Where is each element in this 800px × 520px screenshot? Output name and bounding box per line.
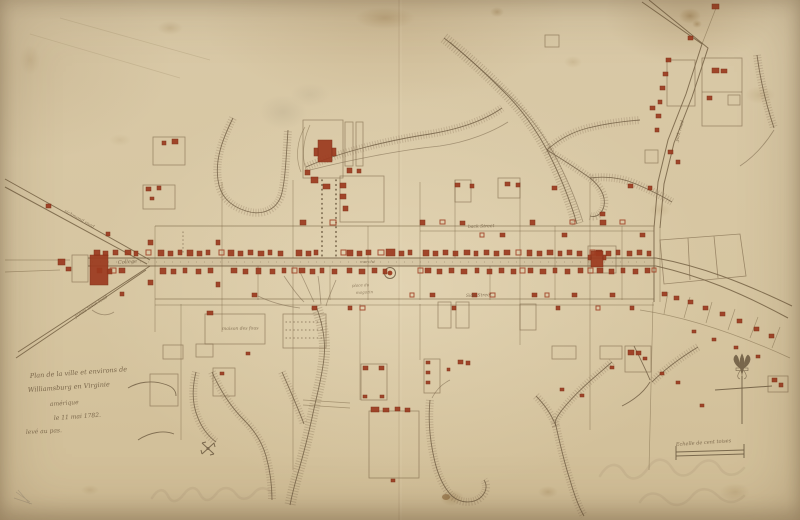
red-building	[712, 338, 716, 341]
red-building	[628, 350, 634, 355]
red-building	[504, 250, 510, 255]
red-building	[433, 251, 438, 256]
red-building	[645, 268, 650, 273]
red-building	[332, 269, 337, 274]
red-building	[676, 381, 680, 384]
red-building	[148, 240, 153, 245]
red-building	[600, 220, 606, 225]
red-building	[426, 361, 430, 364]
red-building	[703, 306, 708, 310]
red-building	[383, 408, 389, 412]
red-building	[426, 381, 430, 384]
red-building	[647, 251, 651, 256]
red-building	[620, 220, 625, 224]
red-building	[332, 148, 336, 156]
red-building	[196, 269, 201, 274]
cartouche-line3: amérique	[50, 399, 80, 408]
red-building	[299, 268, 305, 273]
red-building	[395, 407, 400, 411]
ghost-writing	[14, 460, 744, 505]
cartouche-line2: Williamsburg en Virginie	[28, 380, 111, 394]
red-building	[318, 140, 332, 162]
red-building	[426, 371, 430, 374]
red-building	[453, 251, 458, 256]
red-building	[372, 268, 377, 273]
red-building	[341, 250, 346, 255]
red-building	[712, 68, 719, 73]
red-building	[306, 251, 311, 256]
red-building	[343, 206, 348, 211]
red-building	[577, 251, 582, 256]
red-building	[627, 251, 632, 256]
red-building	[197, 251, 202, 256]
red-building	[378, 250, 384, 255]
red-building	[487, 269, 492, 274]
red-building	[391, 479, 395, 482]
red-building	[207, 311, 213, 315]
red-building	[616, 250, 620, 255]
red-building	[596, 306, 600, 310]
red-building	[206, 250, 210, 255]
red-building	[528, 268, 533, 273]
red-building	[314, 148, 318, 156]
red-building	[464, 250, 470, 255]
red-building	[300, 220, 306, 225]
red-building	[666, 58, 671, 62]
red-building	[330, 220, 336, 225]
red-building	[662, 292, 667, 296]
red-building	[172, 139, 178, 144]
red-building	[630, 306, 634, 310]
red-building	[219, 250, 224, 255]
cartouche-line1: Plan de la ville et environs de	[29, 365, 128, 380]
cartouche-line4: le 11 mai 1782.	[54, 412, 102, 422]
red-building	[470, 184, 474, 188]
map-label-maison-des-fous: maison des fous	[222, 325, 259, 332]
red-building	[320, 268, 324, 273]
red-building	[562, 233, 567, 237]
red-building	[572, 293, 577, 297]
red-building	[148, 280, 153, 285]
red-building	[90, 255, 108, 285]
red-building	[146, 250, 151, 255]
red-building	[700, 404, 704, 407]
red-building	[707, 96, 712, 100]
red-building	[447, 368, 450, 371]
red-building	[363, 366, 368, 370]
red-building	[458, 360, 463, 364]
red-building	[410, 293, 414, 297]
red-building	[305, 170, 310, 175]
red-building	[636, 351, 641, 355]
red-building	[516, 183, 520, 187]
red-building	[216, 240, 220, 245]
red-building	[530, 220, 535, 225]
red-building	[578, 268, 583, 273]
red-building	[494, 251, 499, 256]
red-building	[405, 408, 410, 412]
red-building	[663, 72, 668, 76]
scale-label: Echelle de cent toises	[675, 438, 732, 448]
red-building	[532, 293, 537, 297]
creeks-layer	[92, 38, 774, 516]
red-building	[597, 268, 603, 273]
red-building	[314, 250, 318, 255]
red-building	[560, 388, 564, 391]
red-building	[256, 268, 261, 274]
red-building	[168, 251, 173, 256]
map-label-side-street: Side Street	[466, 292, 492, 299]
red-building	[258, 251, 264, 256]
red-building	[769, 334, 774, 338]
red-building	[171, 269, 176, 274]
red-building	[183, 268, 187, 273]
red-building	[606, 251, 611, 256]
red-building	[588, 268, 593, 273]
red-building	[248, 250, 253, 255]
red-building	[423, 250, 429, 256]
red-building	[545, 293, 549, 297]
red-building	[734, 346, 738, 349]
red-building	[712, 4, 719, 9]
map-label-jamestown-road: james town road	[73, 294, 109, 320]
red-building	[231, 268, 237, 273]
red-building	[150, 197, 154, 200]
red-building	[621, 268, 625, 273]
map-label-magazine-1: place du	[352, 282, 370, 288]
red-building	[120, 292, 124, 296]
red-building	[311, 177, 318, 183]
red-building	[371, 407, 379, 412]
red-building	[558, 251, 562, 256]
red-building	[520, 268, 525, 273]
red-building	[246, 352, 250, 355]
red-building	[162, 141, 166, 145]
red-building	[628, 184, 633, 188]
red-building	[537, 251, 542, 256]
red-building	[347, 168, 352, 173]
red-building	[500, 233, 505, 237]
red-building	[134, 251, 138, 256]
red-building	[340, 183, 346, 188]
red-building	[540, 269, 546, 274]
red-building	[721, 69, 727, 73]
map-label-magazine-2: magazin	[356, 289, 374, 295]
red-building	[688, 36, 693, 40]
red-building	[668, 150, 673, 154]
red-building	[656, 114, 661, 118]
red-building	[527, 250, 532, 256]
red-building	[418, 268, 423, 273]
red-building	[553, 268, 557, 273]
red-building	[125, 250, 131, 255]
red-building	[347, 250, 353, 256]
red-building	[46, 204, 51, 208]
map-label-market: marché	[360, 259, 376, 264]
red-building	[674, 296, 679, 300]
windmill-icon	[201, 442, 215, 455]
red-building	[567, 250, 572, 255]
red-building	[157, 186, 161, 190]
red-building	[146, 187, 151, 191]
red-building	[511, 269, 516, 274]
red-building	[474, 251, 478, 256]
red-building	[270, 269, 275, 274]
red-building	[692, 330, 696, 333]
red-building	[565, 269, 570, 274]
cartouche-line5: levé au pas.	[26, 427, 62, 436]
red-building	[357, 251, 362, 256]
red-building	[220, 372, 224, 375]
red-building	[643, 357, 647, 360]
red-building	[461, 269, 467, 274]
red-building	[588, 255, 591, 260]
red-building	[648, 186, 652, 190]
red-building	[437, 269, 442, 274]
red-building	[440, 220, 445, 224]
red-building	[610, 366, 614, 369]
red-building	[106, 232, 110, 236]
red-building	[386, 249, 395, 256]
red-building	[340, 194, 346, 199]
red-building	[779, 383, 783, 387]
red-building	[475, 268, 479, 273]
red-building	[633, 269, 638, 274]
red-building	[160, 268, 166, 274]
red-building	[58, 259, 65, 265]
cartouche: Plan de la ville et environs de Williams…	[26, 365, 128, 436]
red-building	[383, 269, 387, 274]
red-building	[379, 366, 384, 370]
red-building	[600, 212, 605, 216]
red-building	[252, 293, 257, 297]
red-building	[323, 184, 330, 189]
red-building	[772, 378, 777, 382]
red-building	[113, 250, 118, 255]
red-building	[380, 395, 384, 398]
red-building	[756, 355, 760, 358]
red-building	[296, 250, 302, 256]
red-building	[228, 250, 234, 256]
red-building	[359, 269, 365, 274]
red-building	[609, 269, 614, 274]
red-building	[505, 182, 510, 186]
red-building	[268, 250, 272, 255]
red-building	[399, 251, 404, 256]
red-building	[443, 250, 448, 255]
red-building	[430, 293, 435, 297]
red-building	[603, 255, 606, 260]
red-building	[480, 233, 484, 237]
red-building	[676, 160, 680, 164]
red-building	[357, 169, 361, 173]
red-building	[312, 306, 317, 310]
red-building	[66, 267, 71, 271]
red-building	[552, 186, 557, 190]
red-building	[484, 250, 489, 255]
red-building	[466, 361, 470, 365]
red-building	[347, 268, 352, 273]
compass-rose	[715, 354, 772, 424]
red-building	[425, 268, 431, 273]
red-building	[754, 327, 759, 331]
red-building	[208, 268, 213, 273]
red-building	[216, 282, 220, 287]
red-building	[158, 250, 164, 256]
map-photo: Echelle de cent toises Plan de la ville …	[0, 0, 800, 520]
red-building	[660, 372, 664, 375]
red-building	[720, 312, 725, 316]
red-building	[610, 293, 615, 297]
red-building	[282, 268, 286, 273]
scale-bar: Echelle de cent toises	[675, 438, 744, 460]
red-building	[238, 251, 243, 256]
map-svg: Echelle de cent toises Plan de la ville …	[0, 0, 800, 520]
red-building	[243, 269, 248, 274]
red-building	[580, 394, 584, 397]
map-label-york-road: york road	[674, 120, 686, 144]
red-building	[408, 250, 412, 255]
red-building	[660, 86, 665, 90]
red-building	[650, 106, 655, 110]
buildings-layer	[46, 4, 783, 482]
red-building	[591, 251, 603, 267]
red-building	[455, 183, 460, 187]
red-building	[366, 250, 371, 255]
red-building	[278, 251, 283, 256]
red-building	[449, 268, 454, 273]
red-building	[119, 268, 125, 273]
red-building	[363, 395, 367, 398]
red-building	[187, 250, 193, 256]
red-building	[688, 300, 693, 304]
red-building	[655, 128, 659, 132]
red-building	[460, 221, 465, 225]
red-building	[310, 269, 315, 274]
red-building	[420, 220, 425, 225]
map-label-back-street: back Street	[468, 223, 495, 230]
red-building	[737, 319, 742, 323]
red-building	[547, 250, 553, 255]
red-building	[637, 250, 642, 255]
red-building	[499, 268, 504, 273]
red-building	[348, 306, 352, 310]
red-building	[360, 306, 365, 310]
red-building	[556, 306, 560, 310]
red-building	[178, 250, 182, 255]
red-building	[658, 100, 662, 104]
red-building	[452, 306, 456, 310]
red-building	[640, 233, 645, 237]
